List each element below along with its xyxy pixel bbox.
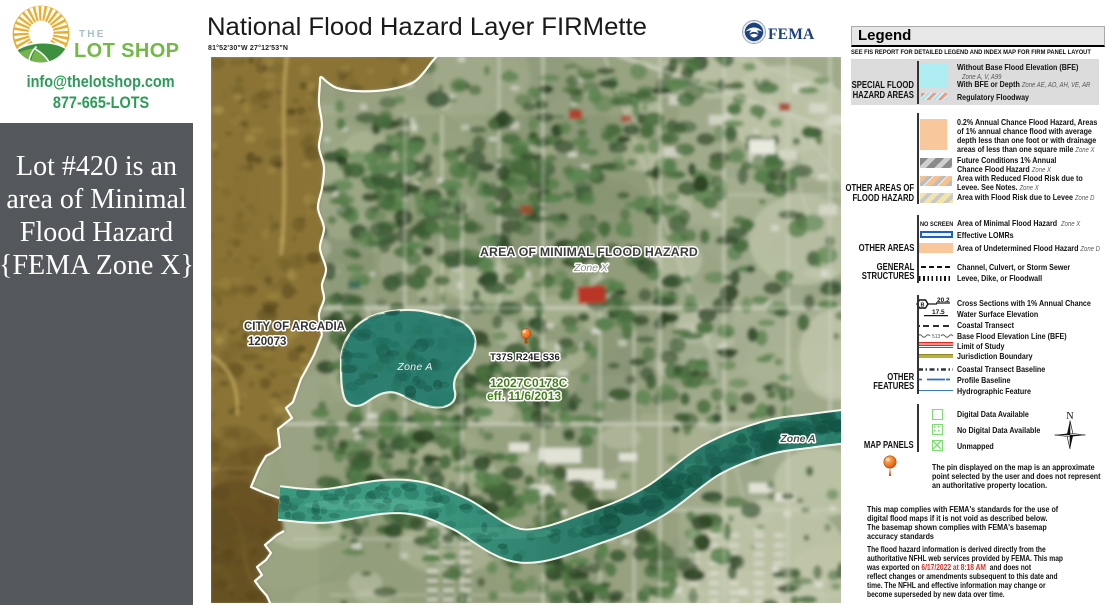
svg-text:17.5: 17.5 [932, 309, 945, 316]
svg-text:N: N [1066, 411, 1073, 422]
svg-text:12027C0178C: 12027C0178C [490, 376, 568, 390]
svg-text:Zone X: Zone X [573, 262, 609, 274]
svg-text:20.2: 20.2 [937, 297, 950, 304]
svg-text:Zone A: Zone A [396, 361, 432, 373]
svg-text:eff. 11/6/2013: eff. 11/6/2013 [487, 389, 561, 403]
svg-text:CITY OF ARCADIA: CITY OF ARCADIA [244, 321, 345, 333]
svg-text:513: 513 [932, 334, 941, 340]
svg-text:T37S R24E S36: T37S R24E S36 [490, 352, 560, 362]
svg-text:120073: 120073 [248, 336, 286, 348]
svg-text:AREA OF MINIMAL FLOOD HAZARD: AREA OF MINIMAL FLOOD HAZARD [480, 245, 698, 259]
